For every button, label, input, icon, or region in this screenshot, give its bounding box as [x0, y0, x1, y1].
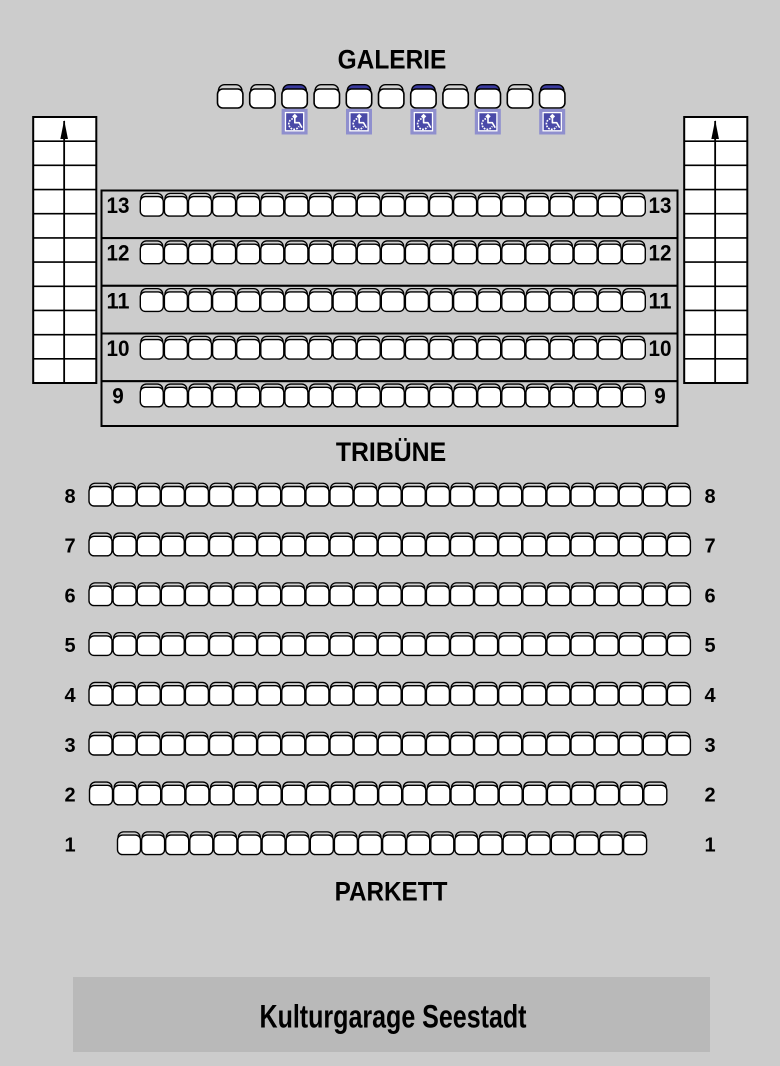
- svg-text:12: 12: [107, 241, 130, 266]
- svg-text:13: 13: [107, 193, 130, 218]
- svg-text:7: 7: [64, 536, 75, 558]
- svg-text:3: 3: [704, 735, 715, 757]
- svg-text:2: 2: [704, 785, 715, 807]
- svg-text:11: 11: [107, 288, 130, 313]
- svg-text:8: 8: [704, 486, 715, 508]
- svg-text:12: 12: [649, 241, 672, 266]
- svg-text:9: 9: [112, 384, 124, 409]
- svg-text:11: 11: [649, 288, 672, 313]
- svg-text:6: 6: [64, 585, 75, 607]
- svg-text:6: 6: [704, 585, 715, 607]
- svg-text:2: 2: [64, 785, 75, 807]
- svg-text:8: 8: [64, 486, 75, 508]
- svg-text:4: 4: [64, 685, 76, 707]
- svg-text:TRIBÜNE: TRIBÜNE: [336, 437, 446, 467]
- svg-text:Kulturgarage Seestadt: Kulturgarage Seestadt: [260, 999, 527, 1035]
- svg-text:5: 5: [64, 635, 75, 657]
- svg-text:5: 5: [704, 635, 715, 657]
- svg-text:1: 1: [64, 834, 75, 856]
- svg-text:9: 9: [654, 384, 666, 409]
- svg-text:PARKETT: PARKETT: [335, 876, 448, 906]
- svg-text:1: 1: [704, 834, 715, 856]
- svg-text:10: 10: [649, 336, 672, 361]
- svg-text:13: 13: [649, 193, 672, 218]
- svg-text:7: 7: [704, 536, 715, 558]
- svg-text:3: 3: [64, 735, 75, 757]
- svg-text:GALERIE: GALERIE: [338, 44, 447, 74]
- svg-text:4: 4: [704, 685, 716, 707]
- svg-text:10: 10: [107, 336, 130, 361]
